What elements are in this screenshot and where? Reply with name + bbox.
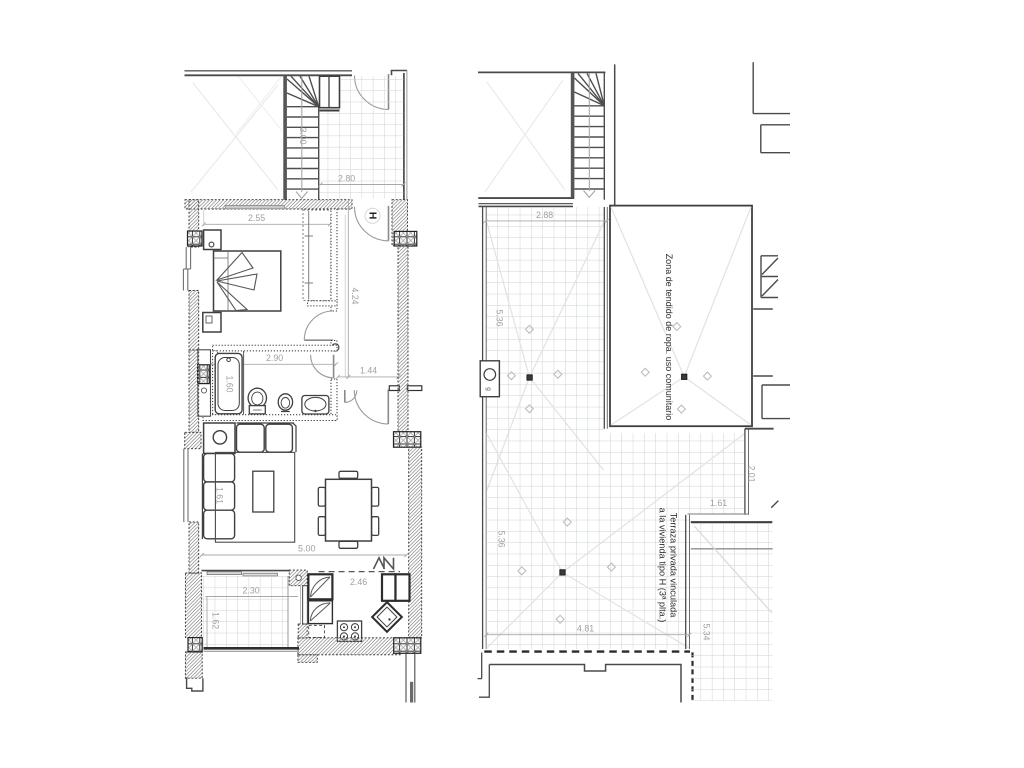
svg-text:2.30: 2.30 bbox=[243, 586, 260, 596]
svg-text:Zona de tendido de ropa. uso c: Zona de tendido de ropa. uso comunitario bbox=[664, 254, 674, 421]
svg-text:5.00: 5.00 bbox=[298, 544, 316, 554]
svg-text:2.55: 2.55 bbox=[248, 213, 265, 223]
svg-text:5.34: 5.34 bbox=[702, 623, 712, 640]
svg-text:2.90: 2.90 bbox=[266, 353, 283, 363]
svg-text:a la vivienda tipo H (3ª plta.: a la vivienda tipo H (3ª plta.) bbox=[658, 508, 668, 623]
svg-text:3.00: 3.00 bbox=[298, 127, 308, 144]
svg-text:2.46: 2.46 bbox=[350, 577, 367, 587]
svg-text:g: g bbox=[485, 387, 492, 391]
svg-text:4.24: 4.24 bbox=[350, 287, 360, 304]
svg-text:1.61: 1.61 bbox=[215, 487, 225, 504]
svg-text:5.36: 5.36 bbox=[495, 309, 505, 326]
svg-text:5.36: 5.36 bbox=[497, 530, 507, 547]
svg-text:4.81: 4.81 bbox=[577, 624, 594, 634]
svg-text:2.01: 2.01 bbox=[747, 465, 757, 482]
svg-text:H: H bbox=[367, 212, 379, 220]
svg-text:1.44: 1.44 bbox=[360, 366, 377, 376]
svg-text:2.80: 2.80 bbox=[338, 174, 355, 184]
svg-text:1.60: 1.60 bbox=[225, 375, 235, 392]
svg-text:1.62: 1.62 bbox=[211, 612, 221, 629]
svg-text:1.61: 1.61 bbox=[710, 498, 727, 508]
svg-text:2.88: 2.88 bbox=[536, 210, 553, 220]
svg-text:Terraza privada vinculada: Terraza privada vinculada bbox=[669, 513, 679, 619]
